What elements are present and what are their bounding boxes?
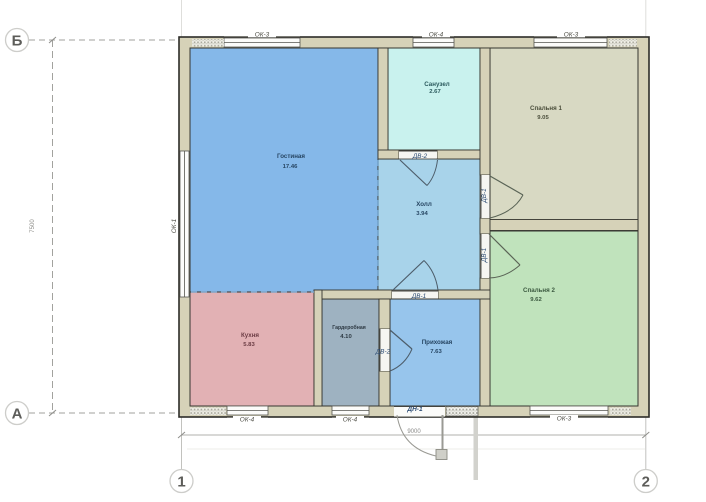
- svg-text:А: А: [12, 406, 23, 423]
- svg-text:ОК-3: ОК-3: [255, 32, 270, 39]
- svg-text:Гардеробная: Гардеробная: [332, 324, 366, 331]
- svg-text:7500: 7500: [30, 219, 36, 233]
- svg-text:Кухня: Кухня: [241, 332, 259, 339]
- svg-text:Прихожая: Прихожая: [422, 339, 453, 346]
- svg-text:1: 1: [177, 474, 185, 491]
- svg-text:ДВ-2: ДВ-2: [412, 153, 428, 160]
- svg-text:Спальня 1: Спальня 1: [530, 105, 562, 112]
- svg-text:2.67: 2.67: [429, 89, 441, 95]
- svg-text:Б: Б: [12, 33, 23, 50]
- svg-text:5.83: 5.83: [243, 342, 255, 348]
- svg-text:7.63: 7.63: [430, 349, 442, 355]
- svg-text:Санузел: Санузел: [424, 81, 450, 88]
- svg-text:ОК-4: ОК-4: [429, 32, 444, 39]
- svg-text:4.10: 4.10: [340, 334, 352, 340]
- svg-text:2: 2: [642, 474, 650, 491]
- svg-text:ОК-3: ОК-3: [564, 32, 579, 39]
- svg-text:ДВ-1: ДВ-1: [481, 248, 488, 263]
- svg-text:ДВ-1: ДВ-1: [481, 188, 488, 203]
- svg-text:ДН-1: ДН-1: [406, 406, 423, 413]
- svg-text:ОК-1: ОК-1: [171, 218, 178, 233]
- svg-text:9.62: 9.62: [530, 297, 542, 303]
- svg-text:ОК-3: ОК-3: [557, 416, 572, 423]
- svg-text:ДВ-1: ДВ-1: [411, 293, 426, 300]
- svg-text:9.05: 9.05: [537, 115, 549, 121]
- svg-text:ОК-4: ОК-4: [240, 417, 255, 424]
- svg-text:Гостиная: Гостиная: [277, 153, 305, 160]
- svg-text:Холл: Холл: [416, 201, 432, 208]
- svg-text:ДВ-2: ДВ-2: [375, 349, 391, 356]
- svg-text:17.46: 17.46: [283, 164, 298, 170]
- svg-text:3.94: 3.94: [416, 211, 428, 217]
- svg-text:ОК-4: ОК-4: [343, 417, 358, 424]
- svg-text:Спальня 2: Спальня 2: [523, 287, 555, 294]
- svg-text:9000: 9000: [407, 429, 421, 435]
